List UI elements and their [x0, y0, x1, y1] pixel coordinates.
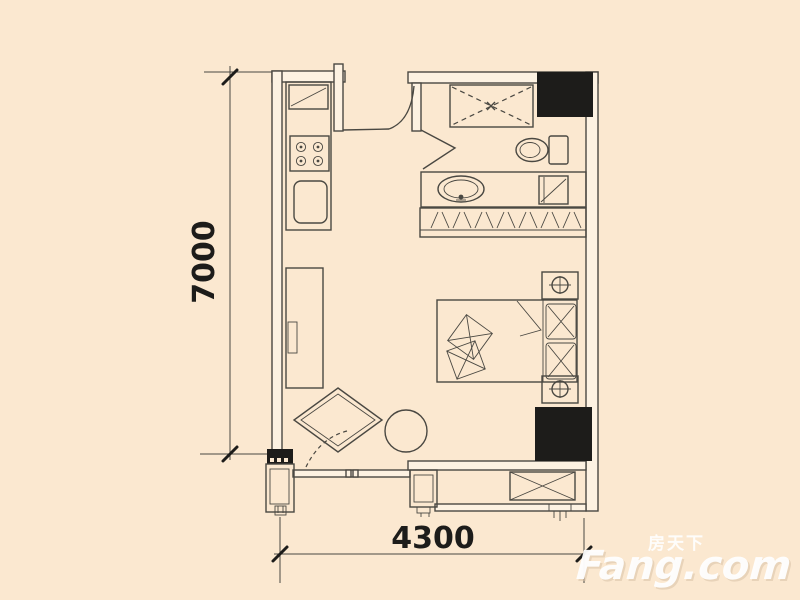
blanket-fold [517, 301, 541, 336]
entry-door-swing-arc [389, 86, 414, 129]
chair-icon [385, 410, 427, 452]
kitchen [286, 82, 331, 230]
ac-platform-icon [510, 472, 575, 500]
cushion-icon [447, 341, 485, 379]
entry-door [343, 86, 414, 130]
pillow-icon [546, 304, 576, 379]
wall-left [272, 71, 282, 452]
ac-unit-left [266, 464, 294, 515]
bedroom [437, 272, 578, 403]
floor-plan-canvas: 7000 4300 Fang.com Fang.com 房天下 [0, 0, 800, 600]
bath-cabinet-icon [539, 176, 568, 204]
dimension-width: 4300 [273, 517, 591, 583]
floor-plan-drawing: 7000 4300 Fang.com Fang.com 房天下 [0, 0, 800, 600]
dining-table-icon [294, 388, 382, 452]
column-bottom-right [535, 407, 592, 461]
cushion-icon [448, 315, 493, 360]
balcony-slab-edge [435, 504, 586, 511]
bathroom-door [421, 130, 455, 169]
closet-hatch-strip [420, 208, 586, 237]
fridge-icon [289, 85, 328, 109]
width-dimension-label: 4300 [391, 521, 475, 556]
toilet-icon [516, 136, 568, 164]
watermark-cn-text: 房天下 [648, 533, 705, 554]
kitchen-counter [286, 82, 331, 230]
fang-watermark: Fang.com Fang.com 房天下 [575, 533, 795, 591]
shower-icon [450, 85, 533, 127]
stove-icon [290, 136, 329, 171]
cabinet [286, 268, 323, 388]
bathroom-vanity [421, 172, 586, 207]
wall-bottom-bedroom [408, 461, 586, 470]
height-dimension-label: 7000 [187, 220, 222, 304]
ac-unit-balcony [410, 470, 437, 517]
wall-kitchen-partition-stub [334, 64, 343, 131]
door-swing-dashed-arc [306, 431, 347, 467]
entry-door-leaf [343, 129, 389, 130]
nightstand-top [542, 272, 578, 299]
bed [437, 300, 577, 382]
column-top-right [537, 72, 593, 117]
dimension-height: 7000 [187, 66, 272, 461]
nightstand-bottom [542, 376, 578, 403]
kitchen-sink-icon [294, 181, 327, 223]
living-area [286, 268, 427, 477]
